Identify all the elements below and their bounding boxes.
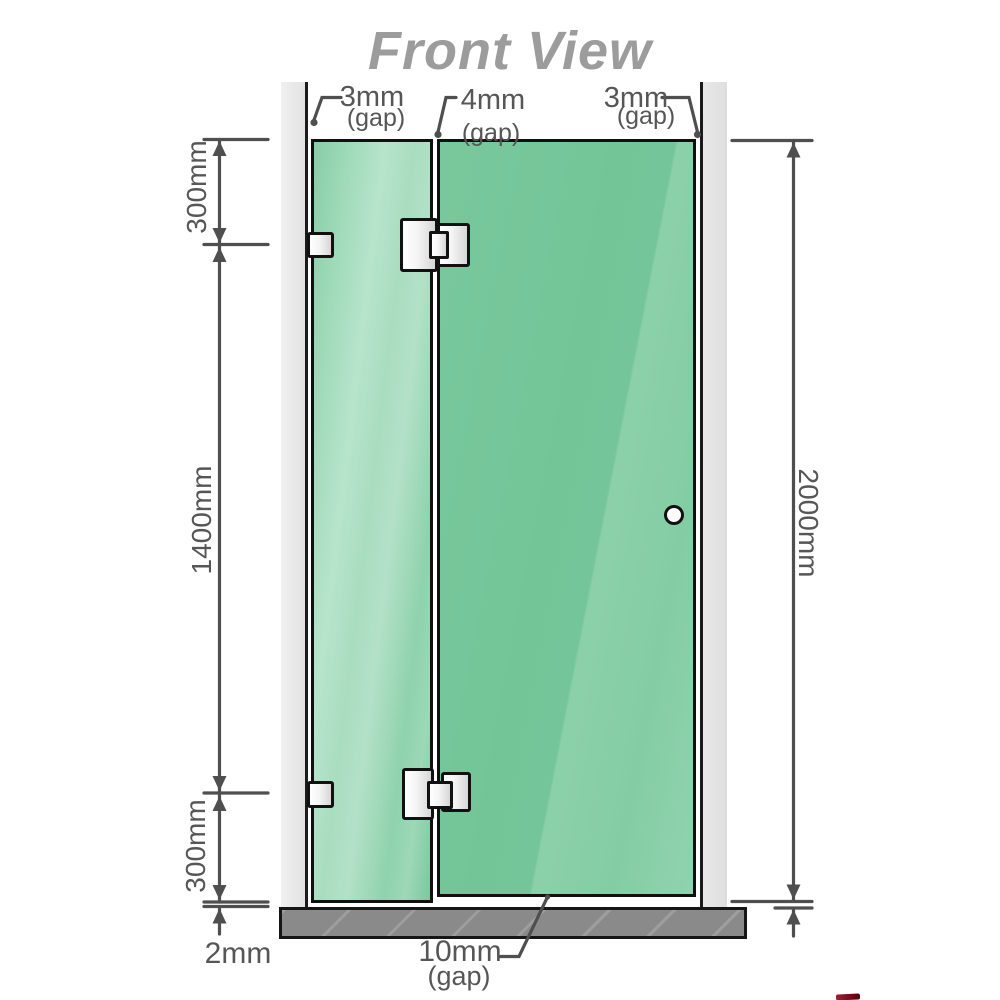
door-glass-panel xyxy=(437,139,696,897)
gap-label-left-suffix: (gap) xyxy=(331,104,421,133)
page-title: Front View xyxy=(270,20,750,82)
dimension-label-door-gap-suffix: (gap) xyxy=(414,961,504,992)
cropped-red-watermark xyxy=(836,993,860,1000)
right-wall xyxy=(702,82,727,907)
dimension-label-top-300: 300mm xyxy=(182,107,212,267)
wall-bracket-top xyxy=(307,232,334,258)
gap-label-right-suffix: (gap) xyxy=(601,102,691,131)
right-wall-edge-line xyxy=(700,82,703,907)
gap-label-center-value: 4mm xyxy=(448,84,538,117)
gap-label-center-suffix: (gap) xyxy=(446,119,536,148)
dimension-label-floor-gap-2mm: 2mm xyxy=(193,937,283,971)
dimension-label-bottom-300: 300mm xyxy=(181,766,211,926)
door-handle-knob xyxy=(664,505,684,525)
hinge-bottom-knuckle xyxy=(427,781,453,809)
wall-bracket-bottom xyxy=(307,781,334,808)
hinge-top xyxy=(400,218,470,272)
left-wall xyxy=(281,82,306,907)
hinge-bottom xyxy=(400,768,470,820)
dimension-label-middle-1400: 1400mm xyxy=(187,440,217,600)
dimension-label-total-2000: 2000mm xyxy=(793,443,823,603)
floor-base-bar xyxy=(279,907,747,939)
hinge-top-knuckle xyxy=(429,231,449,259)
front-view-diagram: Front View xyxy=(0,0,1000,1000)
